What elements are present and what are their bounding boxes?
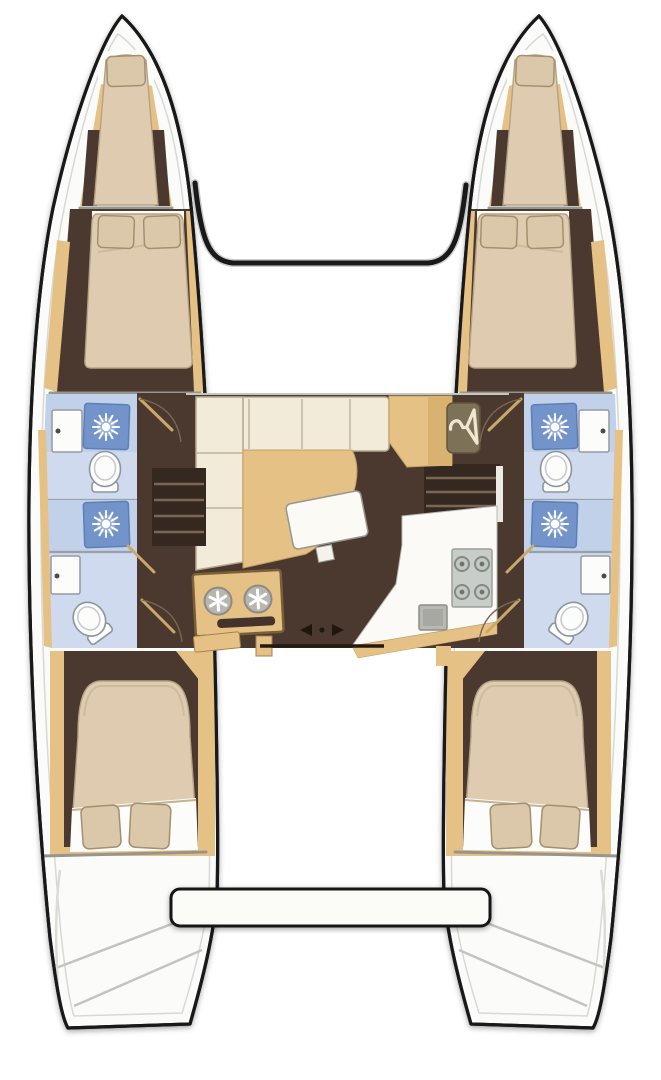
stove-burner [455, 585, 469, 599]
forward-crossbeam [195, 183, 466, 263]
counter-leg [436, 646, 451, 666]
sink-basin [423, 609, 443, 626]
companionway-stairs-port [152, 468, 206, 546]
instrument-dial [204, 587, 232, 615]
saloon [128, 393, 533, 666]
stove-burner [475, 557, 489, 571]
stairs-well [152, 468, 206, 546]
floorplan-page [0, 0, 661, 1080]
stove-burner [475, 585, 489, 599]
stove-burner [455, 557, 469, 571]
table-stool [316, 545, 335, 563]
door-track-dot [320, 628, 325, 633]
aft-platform-beam [171, 889, 490, 926]
instrument-dial [244, 585, 272, 613]
floorplan-canvas [0, 0, 661, 1080]
navigation-station [193, 570, 284, 637]
